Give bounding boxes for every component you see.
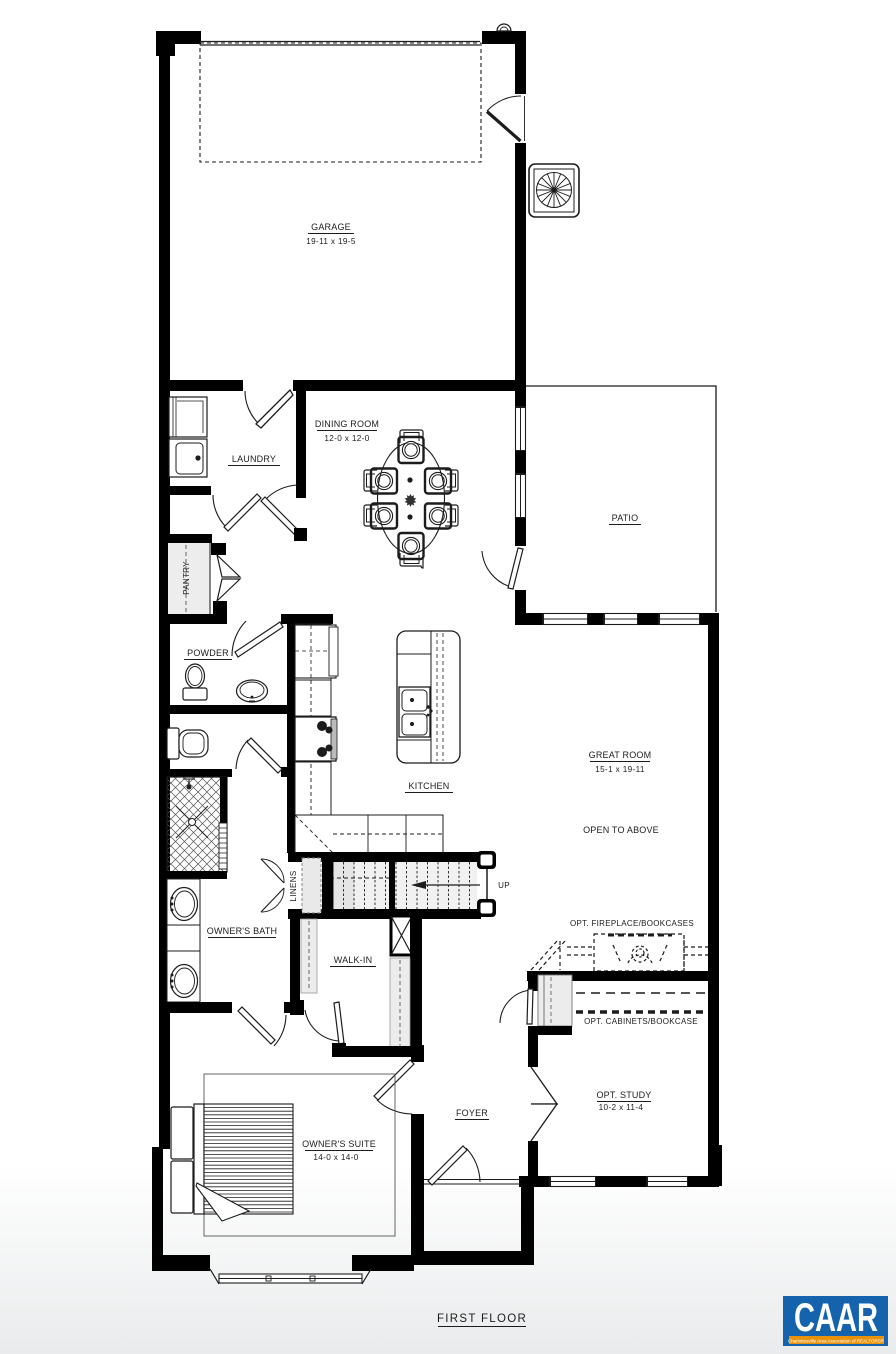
svg-text:KITCHEN: KITCHEN xyxy=(409,781,450,791)
svg-text:UP: UP xyxy=(498,881,510,890)
svg-text:OWNER'S BATH: OWNER'S BATH xyxy=(207,926,277,936)
svg-text:19-11 x 19-5: 19-11 x 19-5 xyxy=(306,237,356,246)
svg-text:DINING ROOM: DINING ROOM xyxy=(315,419,379,429)
svg-text:OPT. STUDY: OPT. STUDY xyxy=(596,1090,651,1100)
svg-text:PATIO: PATIO xyxy=(612,513,639,523)
svg-text:GARAGE: GARAGE xyxy=(311,222,351,232)
svg-text:WALK-IN: WALK-IN xyxy=(334,955,373,965)
svg-text:FOYER: FOYER xyxy=(456,1108,488,1118)
svg-text:Charlottesville Area Associati: Charlottesville Area Association of REAL… xyxy=(788,1338,885,1344)
svg-text:PANTRY: PANTRY xyxy=(182,561,191,595)
svg-text:LAUNDRY: LAUNDRY xyxy=(232,454,276,464)
svg-text:CAAR: CAAR xyxy=(794,1296,878,1340)
svg-text:12-0 x 12-0: 12-0 x 12-0 xyxy=(324,434,369,443)
svg-text:15-1 x 19-11: 15-1 x 19-11 xyxy=(595,765,645,774)
svg-text:FIRST FLOOR: FIRST FLOOR xyxy=(437,1313,527,1325)
svg-text:14-0 x 14-0: 14-0 x 14-0 xyxy=(313,1153,358,1162)
svg-text:OPEN TO ABOVE: OPEN TO ABOVE xyxy=(583,825,659,835)
svg-text:OWNER'S SUITE: OWNER'S SUITE xyxy=(302,1139,376,1149)
svg-text:LINENS: LINENS xyxy=(289,870,298,901)
svg-text:OPT. FIREPLACE/BOOKCASES: OPT. FIREPLACE/BOOKCASES xyxy=(570,919,694,928)
svg-text:GREAT ROOM: GREAT ROOM xyxy=(589,750,652,760)
svg-text:10-2 x 11-4: 10-2 x 11-4 xyxy=(599,1103,644,1112)
svg-text:OPT. CABINETS/BOOKCASE: OPT. CABINETS/BOOKCASE xyxy=(584,1017,698,1026)
svg-text:POWDER: POWDER xyxy=(187,648,229,658)
